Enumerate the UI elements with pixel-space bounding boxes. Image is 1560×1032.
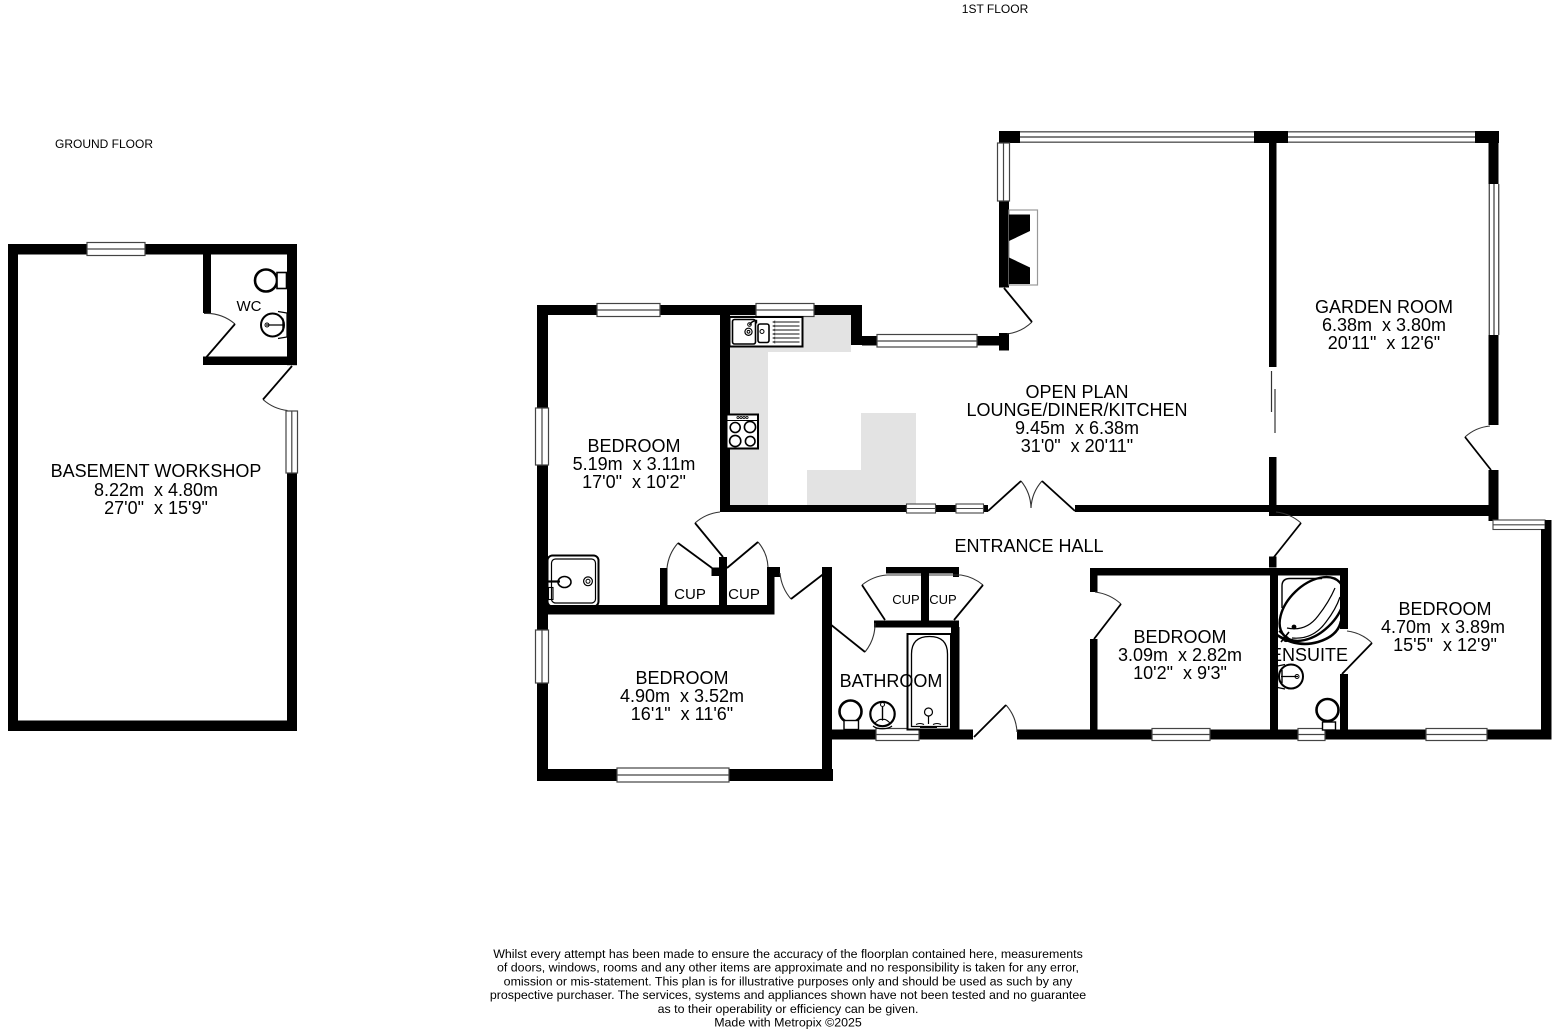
svg-text:GROUND FLOOR: GROUND FLOOR: [55, 137, 153, 151]
svg-text:BEDROOM: BEDROOM: [1133, 627, 1226, 647]
svg-text:CUP: CUP: [929, 592, 956, 607]
svg-text:8.22m x 4.80m: 8.22m x 4.80m: [94, 480, 218, 500]
svg-text:10'2" x 9'3": 10'2" x 9'3": [1133, 663, 1227, 683]
svg-text:17'0" x 10'2": 17'0" x 10'2": [582, 472, 686, 492]
svg-text:BEDROOM: BEDROOM: [635, 668, 728, 688]
svg-text:4.70m x 3.89m: 4.70m x 3.89m: [1381, 617, 1505, 637]
svg-text:prospective purchaser. The ser: prospective purchaser. The services, sys…: [490, 988, 1086, 1002]
svg-text:31'0" x 20'11": 31'0" x 20'11": [1021, 436, 1133, 456]
svg-text:GARDEN ROOM: GARDEN ROOM: [1315, 297, 1453, 317]
svg-text:1ST FLOOR: 1ST FLOOR: [962, 2, 1029, 16]
svg-text:BASEMENT WORKSHOP: BASEMENT WORKSHOP: [51, 461, 262, 481]
svg-text:3.09m x 2.82m: 3.09m x 2.82m: [1118, 645, 1242, 665]
svg-text:as to their operability or eff: as to their operability or efficiency ca…: [658, 1002, 919, 1016]
svg-text:4.90m x 3.52m: 4.90m x 3.52m: [620, 686, 744, 706]
svg-text:Whilst every attempt has been: Whilst every attempt has been made to en…: [493, 947, 1083, 961]
svg-text:5.19m x 3.11m: 5.19m x 3.11m: [573, 454, 696, 474]
svg-text:BEDROOM: BEDROOM: [587, 436, 680, 456]
svg-text:ENTRANCE HALL: ENTRANCE HALL: [954, 536, 1103, 556]
svg-text:CUP: CUP: [674, 586, 706, 603]
svg-text:omission or mis-statement. Thi: omission or mis-statement. This plan is …: [504, 974, 1073, 988]
svg-text:WC: WC: [237, 298, 262, 315]
svg-text:of doors, windows, rooms and a: of doors, windows, rooms and any other i…: [497, 961, 1079, 975]
svg-text:LOUNGE/DINER/KITCHEN: LOUNGE/DINER/KITCHEN: [966, 400, 1187, 420]
svg-text:ENSUITE: ENSUITE: [1270, 645, 1348, 665]
svg-text:CUP: CUP: [892, 592, 919, 607]
svg-text:BEDROOM: BEDROOM: [1398, 599, 1491, 619]
svg-text:6.38m x 3.80m: 6.38m x 3.80m: [1322, 315, 1446, 335]
svg-text:BATHROOM: BATHROOM: [840, 671, 943, 691]
svg-text:16'1" x 11'6": 16'1" x 11'6": [631, 704, 733, 724]
svg-text:27'0" x 15'9": 27'0" x 15'9": [104, 498, 208, 518]
svg-text:15'5" x 12'9": 15'5" x 12'9": [1393, 635, 1497, 655]
svg-text:OPEN PLAN: OPEN PLAN: [1025, 382, 1128, 402]
svg-text:20'11" x 12'6": 20'11" x 12'6": [1328, 333, 1440, 353]
svg-text:9.45m x 6.38m: 9.45m x 6.38m: [1015, 418, 1139, 438]
svg-text:CUP: CUP: [728, 586, 760, 603]
svg-text:Made with Metropix ©2025: Made with Metropix ©2025: [714, 1016, 862, 1030]
